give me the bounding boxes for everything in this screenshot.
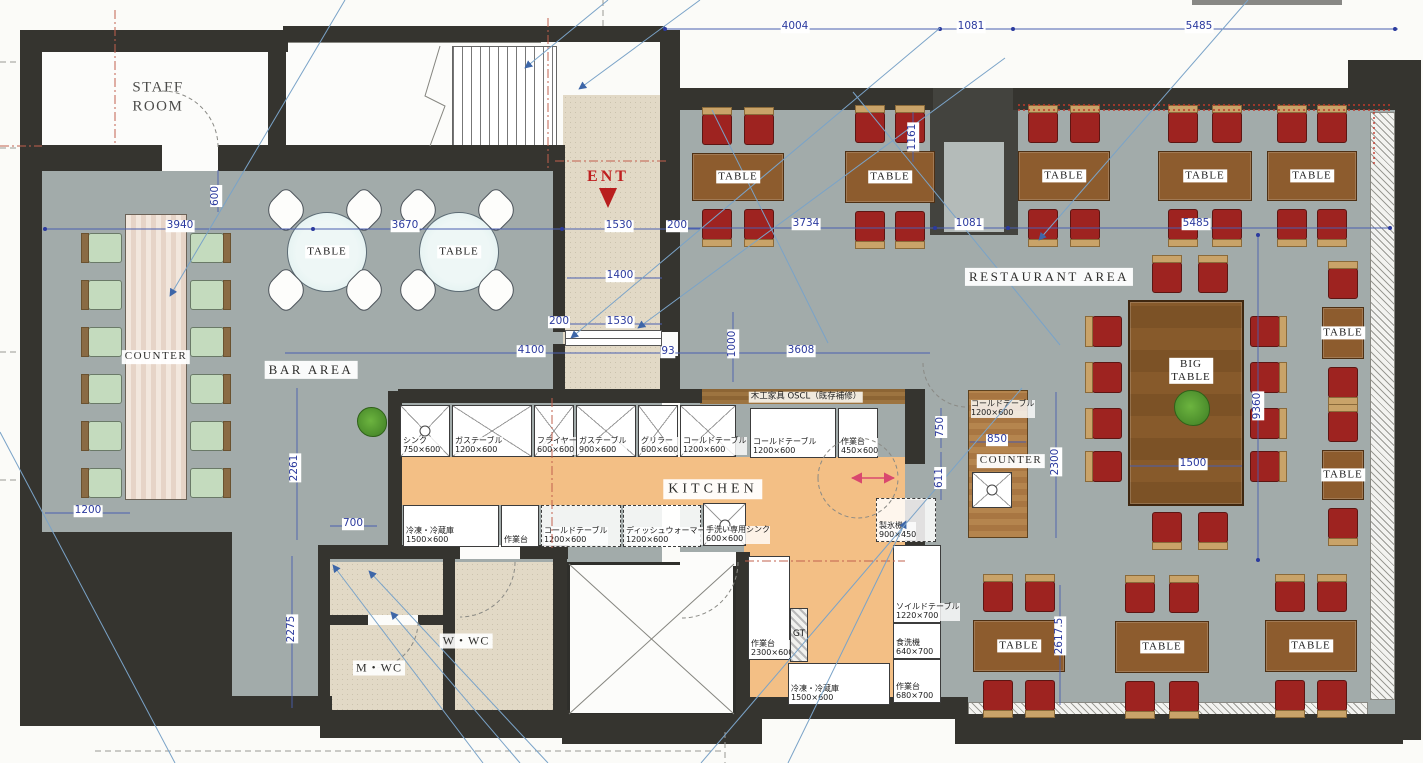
cropped-header-artifact <box>1192 0 1342 5</box>
kitchen-equipment: ガステーブル900×600 <box>576 405 636 457</box>
kitchen-equipment: 作業台680×700 <box>893 659 941 703</box>
chair <box>1070 209 1100 240</box>
chair <box>1092 408 1122 439</box>
chair <box>1152 262 1182 293</box>
label-w_wc: W・WC <box>440 634 493 649</box>
dimension-label: 3734 <box>792 218 821 230</box>
dimension-label: 5485 <box>1182 218 1211 230</box>
table-label: TABLE <box>1290 169 1334 182</box>
chair <box>855 211 885 242</box>
wall <box>42 532 232 700</box>
dimension-label: 5485 <box>1185 21 1214 33</box>
dimension-label: 2617.5 <box>1054 617 1066 656</box>
dimension-label: 1530 <box>605 220 634 232</box>
kitchen-equipment: コールドテーブル1200×600 <box>969 393 1027 419</box>
floor-store-room <box>567 562 736 716</box>
table-label: TABLE <box>1321 468 1365 481</box>
dimension-label: 850 <box>986 434 1008 446</box>
plant <box>1174 390 1210 426</box>
wall <box>562 714 762 744</box>
table-label: TABLE <box>1183 169 1227 182</box>
floor-plan-canvas: TABLETABLETABLETABLETABLETABLETABLETABLE… <box>0 0 1423 763</box>
table-label: TABLE <box>1321 326 1365 339</box>
label-bar_area: BAR AREA <box>265 361 358 379</box>
table-label: TABLE <box>997 639 1041 652</box>
dimension-label: 600 <box>210 185 222 207</box>
dimension-label: 2300 <box>1050 448 1062 477</box>
plant <box>357 407 387 437</box>
kitchen-equipment: GT <box>790 608 808 662</box>
label-counter: COUNTER <box>977 454 1045 468</box>
chair <box>744 209 774 240</box>
chair <box>1250 362 1280 393</box>
dimension-label: 700 <box>342 518 364 530</box>
wall <box>218 145 565 171</box>
chair <box>1317 112 1347 143</box>
equipment-label: コールドテーブル1200×600 <box>753 438 817 456</box>
wall <box>20 30 288 52</box>
chair <box>88 421 122 451</box>
chair <box>190 280 224 310</box>
chair <box>1275 680 1305 711</box>
door-opening <box>680 552 736 566</box>
kitchen-equipment: 食洗機640×700 <box>893 623 941 659</box>
kitchen-equipment: 冷凍・冷蔵庫1500×600 <box>403 505 499 547</box>
chair <box>983 581 1013 612</box>
dimension-label: 1161 <box>907 123 919 152</box>
chair <box>1169 582 1199 613</box>
chair <box>1169 681 1199 712</box>
equipment-label: 冷凍・冷蔵庫1500×600 <box>791 685 839 703</box>
wall <box>268 30 286 152</box>
chair <box>702 209 732 240</box>
equipment-label: 冷凍・冷蔵庫1500×600 <box>406 527 454 545</box>
chair <box>1212 209 1242 240</box>
chair <box>88 233 122 263</box>
chair <box>1092 316 1122 347</box>
wall <box>318 552 330 718</box>
chair <box>1328 367 1358 398</box>
table-label: TABLE <box>868 170 912 183</box>
equipment-label: 食洗機640×700 <box>896 639 933 657</box>
floor-kitchen-corridor <box>400 457 905 505</box>
chair <box>88 468 122 498</box>
dimension-label: 1000 <box>727 330 739 359</box>
dimension-label: 611 <box>934 467 946 489</box>
dimension-label: 1081 <box>957 21 986 33</box>
counter-sink <box>972 472 1012 508</box>
wall <box>553 148 565 332</box>
chair <box>1250 316 1280 347</box>
kitchen-equipment: コールドテーブル1200×600 <box>680 405 736 457</box>
entrance-arrow-icon <box>599 188 617 208</box>
chair <box>190 374 224 404</box>
kitchen-equipment: フライヤー600×600 <box>534 405 574 457</box>
chair <box>190 468 224 498</box>
dimension-label: 4004 <box>781 21 810 33</box>
chair <box>190 233 224 263</box>
label-m_wc: M・WC <box>353 661 405 676</box>
dimension-label: 200 <box>666 220 688 232</box>
chair <box>1275 581 1305 612</box>
chair <box>702 114 732 145</box>
kitchen-equipment: 冷凍・冷蔵庫1500×600 <box>788 663 890 705</box>
kitchen-equipment: グリラー600×600 <box>638 405 678 457</box>
dimension-label: 750 <box>935 416 947 438</box>
dimension-label: 2275 <box>286 615 298 644</box>
equipment-label: 作業台450×600 <box>841 438 878 456</box>
equipment-label: ディッシュウォーマー1200×600 <box>626 527 705 545</box>
dimension-label: 1081 <box>955 218 984 230</box>
table-label: TABLE <box>1140 640 1184 653</box>
door-opening <box>460 545 520 559</box>
chair <box>88 374 122 404</box>
chair <box>1168 112 1198 143</box>
kitchen-equipment: 手洗い専用シンク600×600 <box>703 503 746 546</box>
kitchen-equipment: 作業台2300×600 <box>748 556 790 660</box>
equipment-label: コールドテーブル1200×600 <box>544 527 608 545</box>
equipment-label: コールドテーブル1200×600 <box>971 400 1035 418</box>
kitchen-equipment: シンク750×600 <box>400 405 450 457</box>
chair <box>1092 451 1122 482</box>
dimension-label: 1500 <box>1179 458 1208 470</box>
chair <box>88 280 122 310</box>
equipment-label: ガステーブル900×600 <box>579 437 627 455</box>
wall <box>20 30 42 726</box>
chair <box>1125 681 1155 712</box>
chair <box>1152 512 1182 543</box>
dimension-label: 1200 <box>74 505 103 517</box>
chair <box>190 327 224 357</box>
wall <box>905 389 925 464</box>
equipment-label: フライヤー600×600 <box>537 437 577 455</box>
kitchen-equipment: コールドテーブル1200×600 <box>541 505 621 547</box>
door-opening <box>368 615 418 625</box>
label-restaurant_area: RESTAURANT AREA <box>965 268 1133 286</box>
chair <box>1328 411 1358 442</box>
dimension-label: 93 <box>660 346 675 358</box>
chair <box>1070 112 1100 143</box>
label-kitchen: KITCHEN <box>663 479 762 499</box>
hatch-strip-right <box>1370 112 1395 700</box>
big-table-label: BIG TABLE <box>1169 358 1213 384</box>
sliding-door <box>565 330 662 346</box>
dimension-label: 1530 <box>606 316 635 328</box>
table-label: TABLE <box>1289 639 1333 652</box>
equipment-label: コールドテーブル1200×600 <box>683 437 747 455</box>
wall <box>553 552 567 724</box>
wall <box>553 344 565 394</box>
equipment-label: 作業台2300×600 <box>751 640 793 658</box>
wall <box>398 389 702 403</box>
chair <box>1328 508 1358 539</box>
equipment-label: GT <box>793 630 805 640</box>
chair <box>1025 680 1055 711</box>
kitchen-equipment: ディッシュウォーマー1200×600 <box>623 505 701 547</box>
chair <box>895 211 925 242</box>
wall <box>283 26 665 42</box>
equipment-label: 手洗い専用シンク600×600 <box>706 526 770 544</box>
equipment-label: 作業台 <box>504 536 528 545</box>
dimension-label: 4100 <box>517 345 546 357</box>
chair <box>1028 112 1058 143</box>
equipment-label: ソイルドテーブル1220×700 <box>896 603 960 621</box>
chair <box>1212 112 1242 143</box>
chair <box>190 421 224 451</box>
stair-treads <box>452 46 557 148</box>
floor-wc-vestibule <box>330 562 443 710</box>
chair <box>1250 451 1280 482</box>
dimension-label: 2261 <box>289 454 301 483</box>
table-label: TABLE <box>716 170 760 183</box>
dimension-label: 3608 <box>787 345 816 357</box>
chair <box>855 112 885 143</box>
wall <box>1395 60 1421 740</box>
chair <box>1317 680 1347 711</box>
chair <box>1277 209 1307 240</box>
chair <box>1028 209 1058 240</box>
door-opening <box>162 145 218 171</box>
wall <box>20 696 332 726</box>
kitchen-equipment: 作業台 <box>501 505 539 547</box>
table-label: TABLE <box>1042 169 1086 182</box>
chair <box>1328 268 1358 299</box>
kitchen-equipment: 作業台450×600 <box>838 408 878 458</box>
kitchen-equipment: ソイルドテーブル1220×700 <box>893 545 941 623</box>
chair <box>983 680 1013 711</box>
dimension-label: 9360 <box>1252 392 1264 421</box>
table-label: TABLE <box>437 245 481 258</box>
chair <box>1277 112 1307 143</box>
floor-entrance-vestibule <box>563 95 660 391</box>
dimension-label: 3940 <box>166 220 195 232</box>
kitchen-equipment: 製氷機900×450 <box>876 498 936 542</box>
table-label: TABLE <box>305 245 349 258</box>
kitchen-equipment: コールドテーブル1200×600 <box>750 408 836 458</box>
chair <box>88 327 122 357</box>
chair <box>1198 512 1228 543</box>
chair <box>1317 209 1347 240</box>
chair <box>1125 582 1155 613</box>
label-counter: COUNTER <box>122 350 190 364</box>
equipment-label: ガステーブル1200×600 <box>455 437 503 455</box>
equipment-label: グリラー600×600 <box>641 437 678 455</box>
label-ent: ENT <box>587 167 629 187</box>
equipment-label: 作業台680×700 <box>896 683 933 701</box>
dimension-label: 200 <box>548 316 570 328</box>
chair <box>1317 581 1347 612</box>
equipment-label: 製氷機900×450 <box>879 522 916 540</box>
wall <box>20 145 162 171</box>
label-staff_room: STAFF ROOM <box>132 78 183 116</box>
dimension-label: 3670 <box>391 220 420 232</box>
kitchen-equipment: ガステーブル1200×600 <box>452 405 532 457</box>
chair <box>744 114 774 145</box>
label-carpentry_note: 木工家具 OSCL（既存補修） <box>749 392 863 403</box>
chair <box>1025 581 1055 612</box>
dimension-label: 1400 <box>606 270 635 282</box>
wall <box>320 710 570 738</box>
chair <box>1092 362 1122 393</box>
chair <box>1198 262 1228 293</box>
equipment-label: シンク750×600 <box>403 437 440 455</box>
